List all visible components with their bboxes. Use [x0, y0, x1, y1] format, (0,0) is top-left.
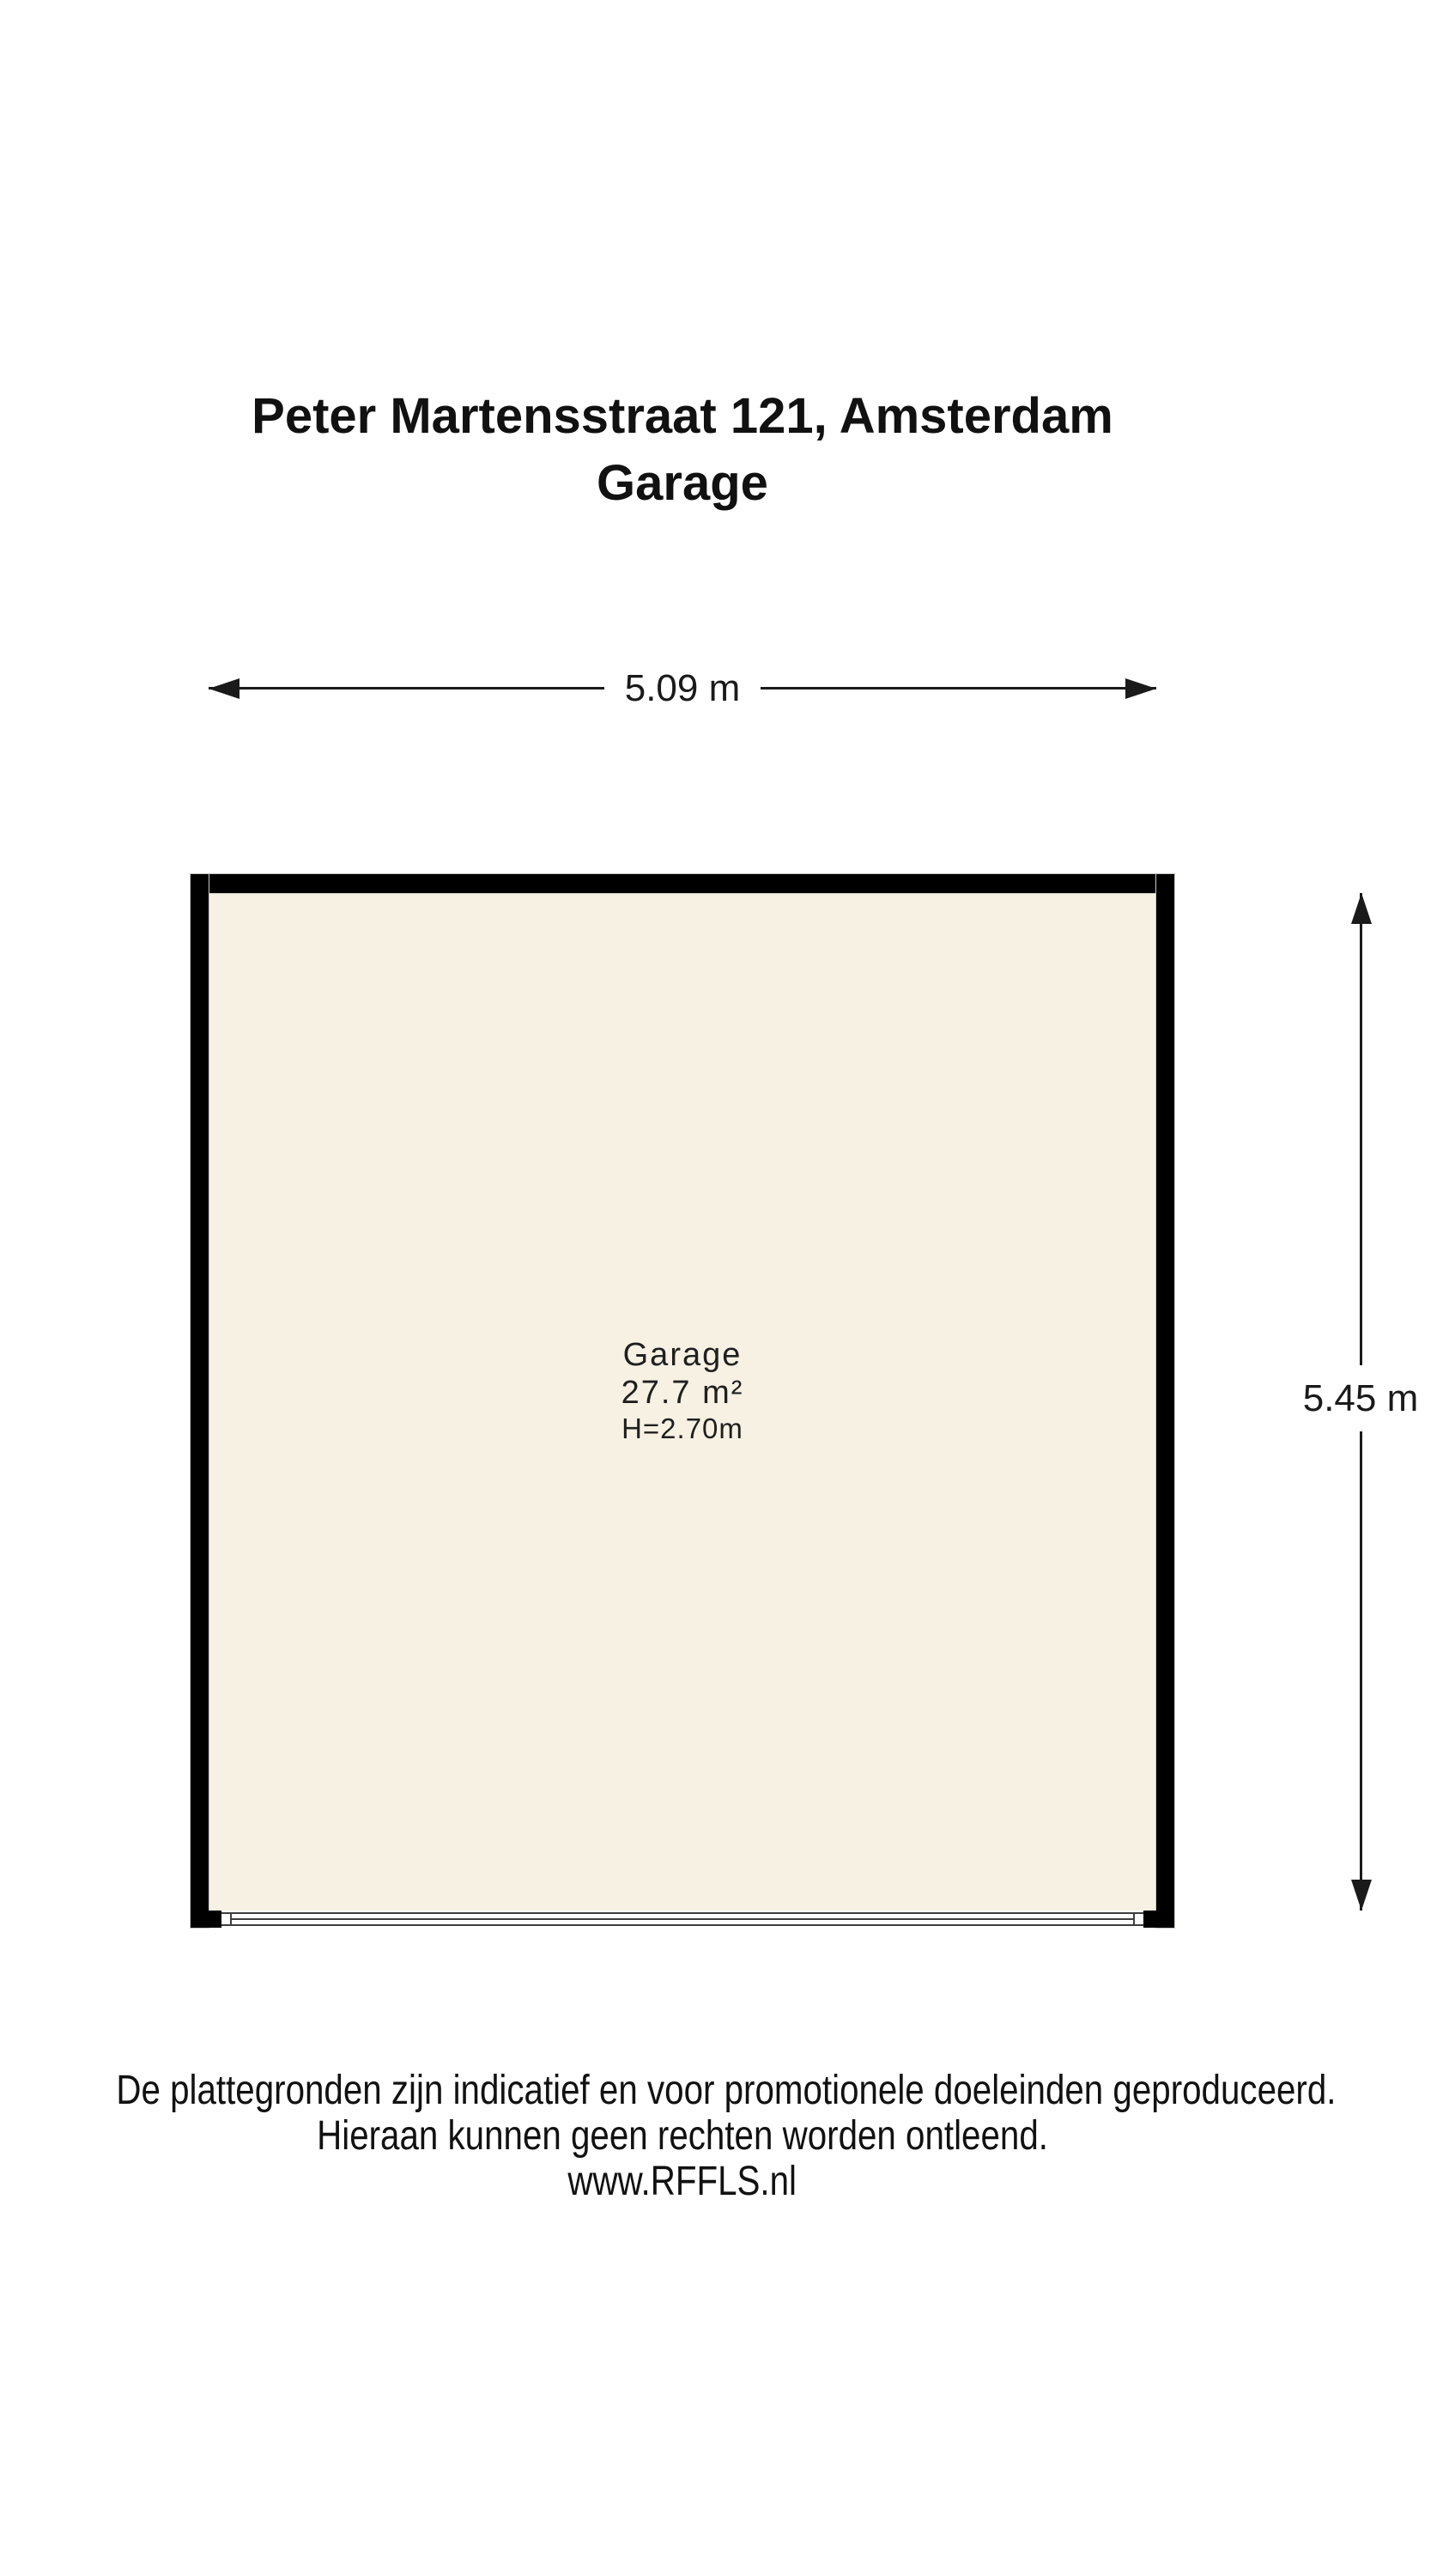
arrow-up-icon — [1351, 893, 1372, 924]
disclaimer-line-2: Hieraan kunnen geen rechten worden ontle… — [317, 2113, 1048, 2159]
garage-door-midline — [232, 1918, 1133, 1920]
garage-door-frame-right — [1133, 1914, 1135, 1924]
page-title: Peter Martensstraat 121, Amsterdam Garag… — [0, 383, 1365, 517]
disclaimer-line-1: De plattegronden zijn indicatief en voor… — [116, 2068, 1336, 2113]
wall-top — [191, 874, 1174, 893]
disclaimer-website: www.RFFLS.nl — [568, 2159, 797, 2204]
arrow-down-icon — [1351, 1880, 1372, 1911]
floorplan-page: Peter Martensstraat 121, Amsterdam Garag… — [0, 0, 1449, 2576]
wall-right — [1156, 874, 1174, 1928]
room-ceiling-height: H=2.70m — [209, 1412, 1156, 1446]
page-title-subtitle: Garage — [0, 450, 1365, 517]
room-name: Garage — [209, 1336, 1156, 1374]
width-dimension-label: 5.09 m — [209, 665, 1156, 713]
room-area: 27.7 m² — [209, 1374, 1156, 1412]
page-title-address: Peter Martensstraat 121, Amsterdam — [0, 383, 1365, 450]
wall-stub-bottom-left — [191, 1911, 221, 1928]
garage-door-symbol — [221, 1912, 1143, 1926]
height-dimension-label: 5.45 m — [1215, 1375, 1449, 1423]
wall-left — [191, 874, 209, 1928]
disclaimer: De plattegronden zijn indicatief en voor… — [0, 2068, 1365, 2204]
room-label: Garage 27.7 m² H=2.70m — [209, 1336, 1156, 1446]
wall-stub-bottom-right — [1143, 1911, 1174, 1928]
